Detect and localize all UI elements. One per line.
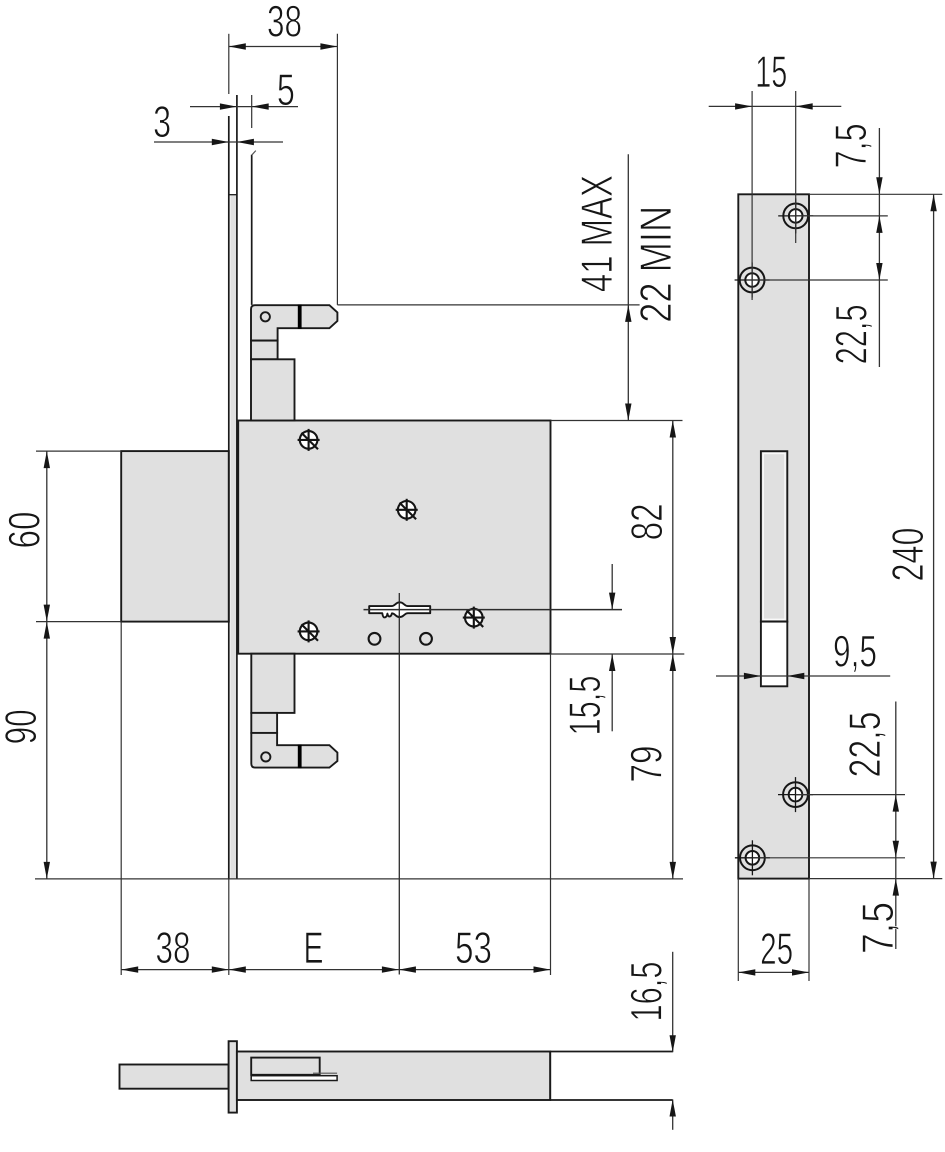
svg-text:79: 79 [622, 746, 671, 783]
svg-text:E: E [304, 924, 324, 973]
svg-text:38: 38 [156, 924, 191, 973]
svg-text:53: 53 [455, 924, 492, 973]
svg-text:15,5: 15,5 [561, 676, 610, 736]
svg-text:7,5: 7,5 [827, 123, 876, 168]
svg-text:22 MIN: 22 MIN [632, 206, 681, 323]
svg-text:22,5: 22,5 [828, 304, 877, 364]
svg-text:25: 25 [760, 925, 793, 974]
svg-text:60: 60 [1, 512, 50, 549]
svg-text:82: 82 [623, 503, 672, 540]
svg-text:22,5: 22,5 [841, 712, 890, 778]
svg-text:240: 240 [884, 528, 933, 582]
svg-text:15: 15 [755, 48, 787, 97]
svg-text:41 MAX: 41 MAX [573, 175, 622, 292]
svg-text:7,5: 7,5 [854, 902, 903, 954]
svg-text:5: 5 [277, 66, 295, 115]
svg-text:16,5: 16,5 [623, 962, 672, 1022]
svg-text:9,5: 9,5 [833, 628, 877, 677]
svg-text:90: 90 [0, 709, 46, 744]
svg-text:38: 38 [267, 0, 302, 47]
svg-text:3: 3 [153, 98, 171, 147]
